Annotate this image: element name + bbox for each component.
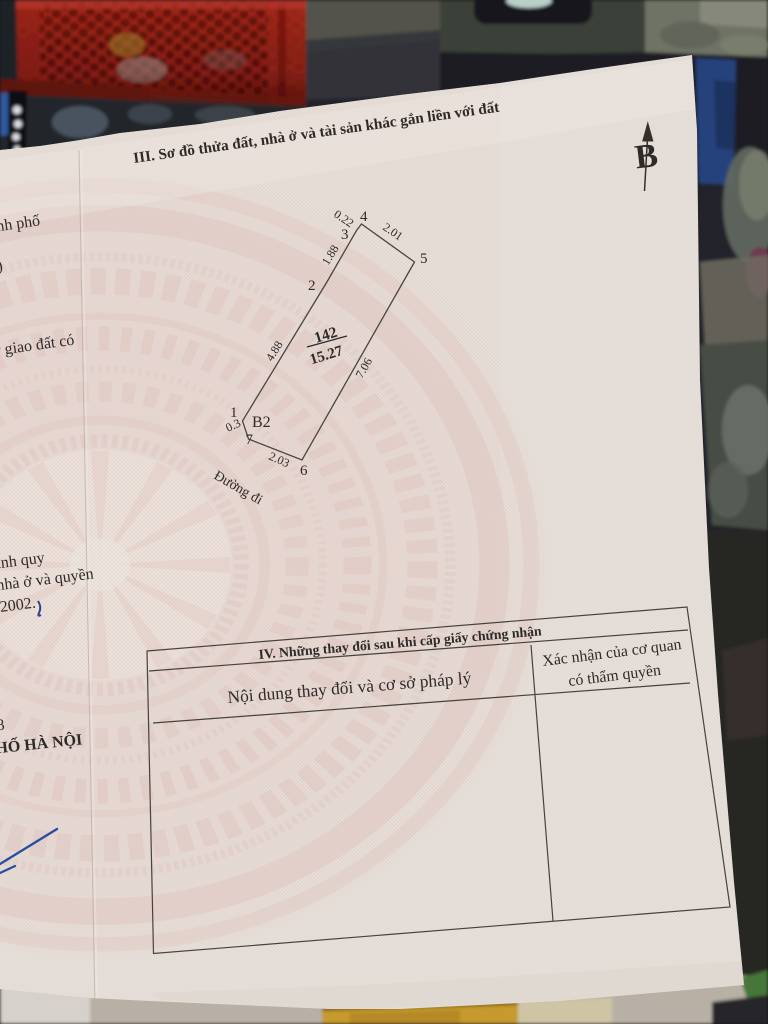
svg-text:3: 3: [341, 227, 349, 243]
svg-text:5: 5: [420, 251, 428, 267]
svg-text:B2: B2: [252, 414, 271, 431]
svg-text:7: 7: [246, 432, 254, 448]
svg-text:B: B: [633, 137, 660, 176]
svg-text:6: 6: [300, 463, 308, 479]
svg-text:2: 2: [308, 278, 316, 294]
svg-text:4: 4: [360, 209, 368, 225]
